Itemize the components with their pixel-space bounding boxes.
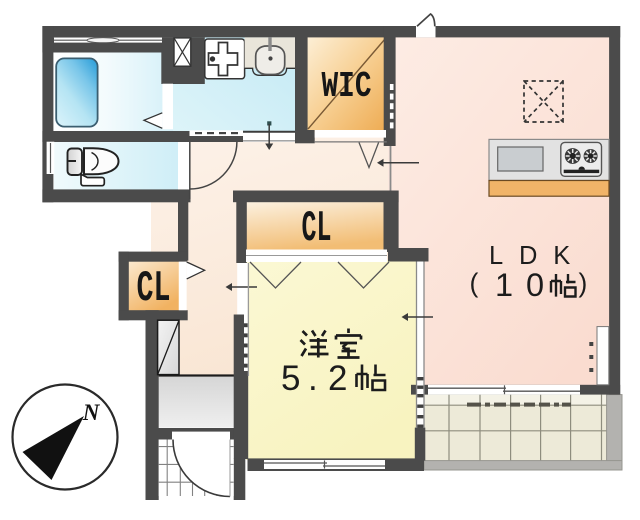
- svg-text:(: (: [470, 268, 479, 298]
- svg-text:CL: CL: [302, 204, 332, 254]
- svg-text:5: 5: [281, 359, 300, 398]
- svg-text:1: 1: [495, 267, 513, 303]
- svg-text:2: 2: [328, 359, 347, 398]
- svg-text:): ): [579, 268, 588, 298]
- svg-text:0: 0: [526, 267, 544, 303]
- svg-text:.: .: [308, 359, 318, 398]
- svg-text:N: N: [82, 400, 101, 425]
- svg-text:CL: CL: [137, 264, 171, 314]
- svg-text:WIC: WIC: [322, 66, 372, 107]
- svg-text:LDK: LDK: [489, 242, 586, 270]
